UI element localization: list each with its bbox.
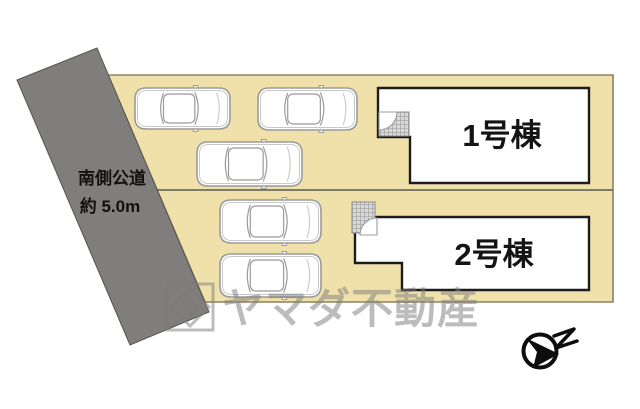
road-label-line2: 約 5.0m (80, 196, 140, 216)
compass (524, 329, 578, 368)
building-1-label: 1号棟 (462, 118, 542, 153)
site-plan: 1号棟2号棟 南側公道 約 5.0m ヤマダ不動産 (0, 0, 640, 409)
car-3 (197, 140, 302, 189)
car-roof (250, 206, 283, 237)
car-4 (220, 198, 321, 246)
watermark-text: ヤマダ不動産 (222, 285, 480, 332)
building-2-label: 2号棟 (454, 237, 534, 272)
car-roof (288, 94, 321, 124)
car-2 (258, 86, 357, 133)
car-1 (135, 86, 230, 132)
building-1: 1号棟 (378, 88, 589, 183)
car-roof (229, 148, 264, 180)
car-roof (164, 94, 195, 123)
compass-north-letter (554, 329, 577, 348)
road-label-line1: 南側公道 (78, 168, 146, 188)
